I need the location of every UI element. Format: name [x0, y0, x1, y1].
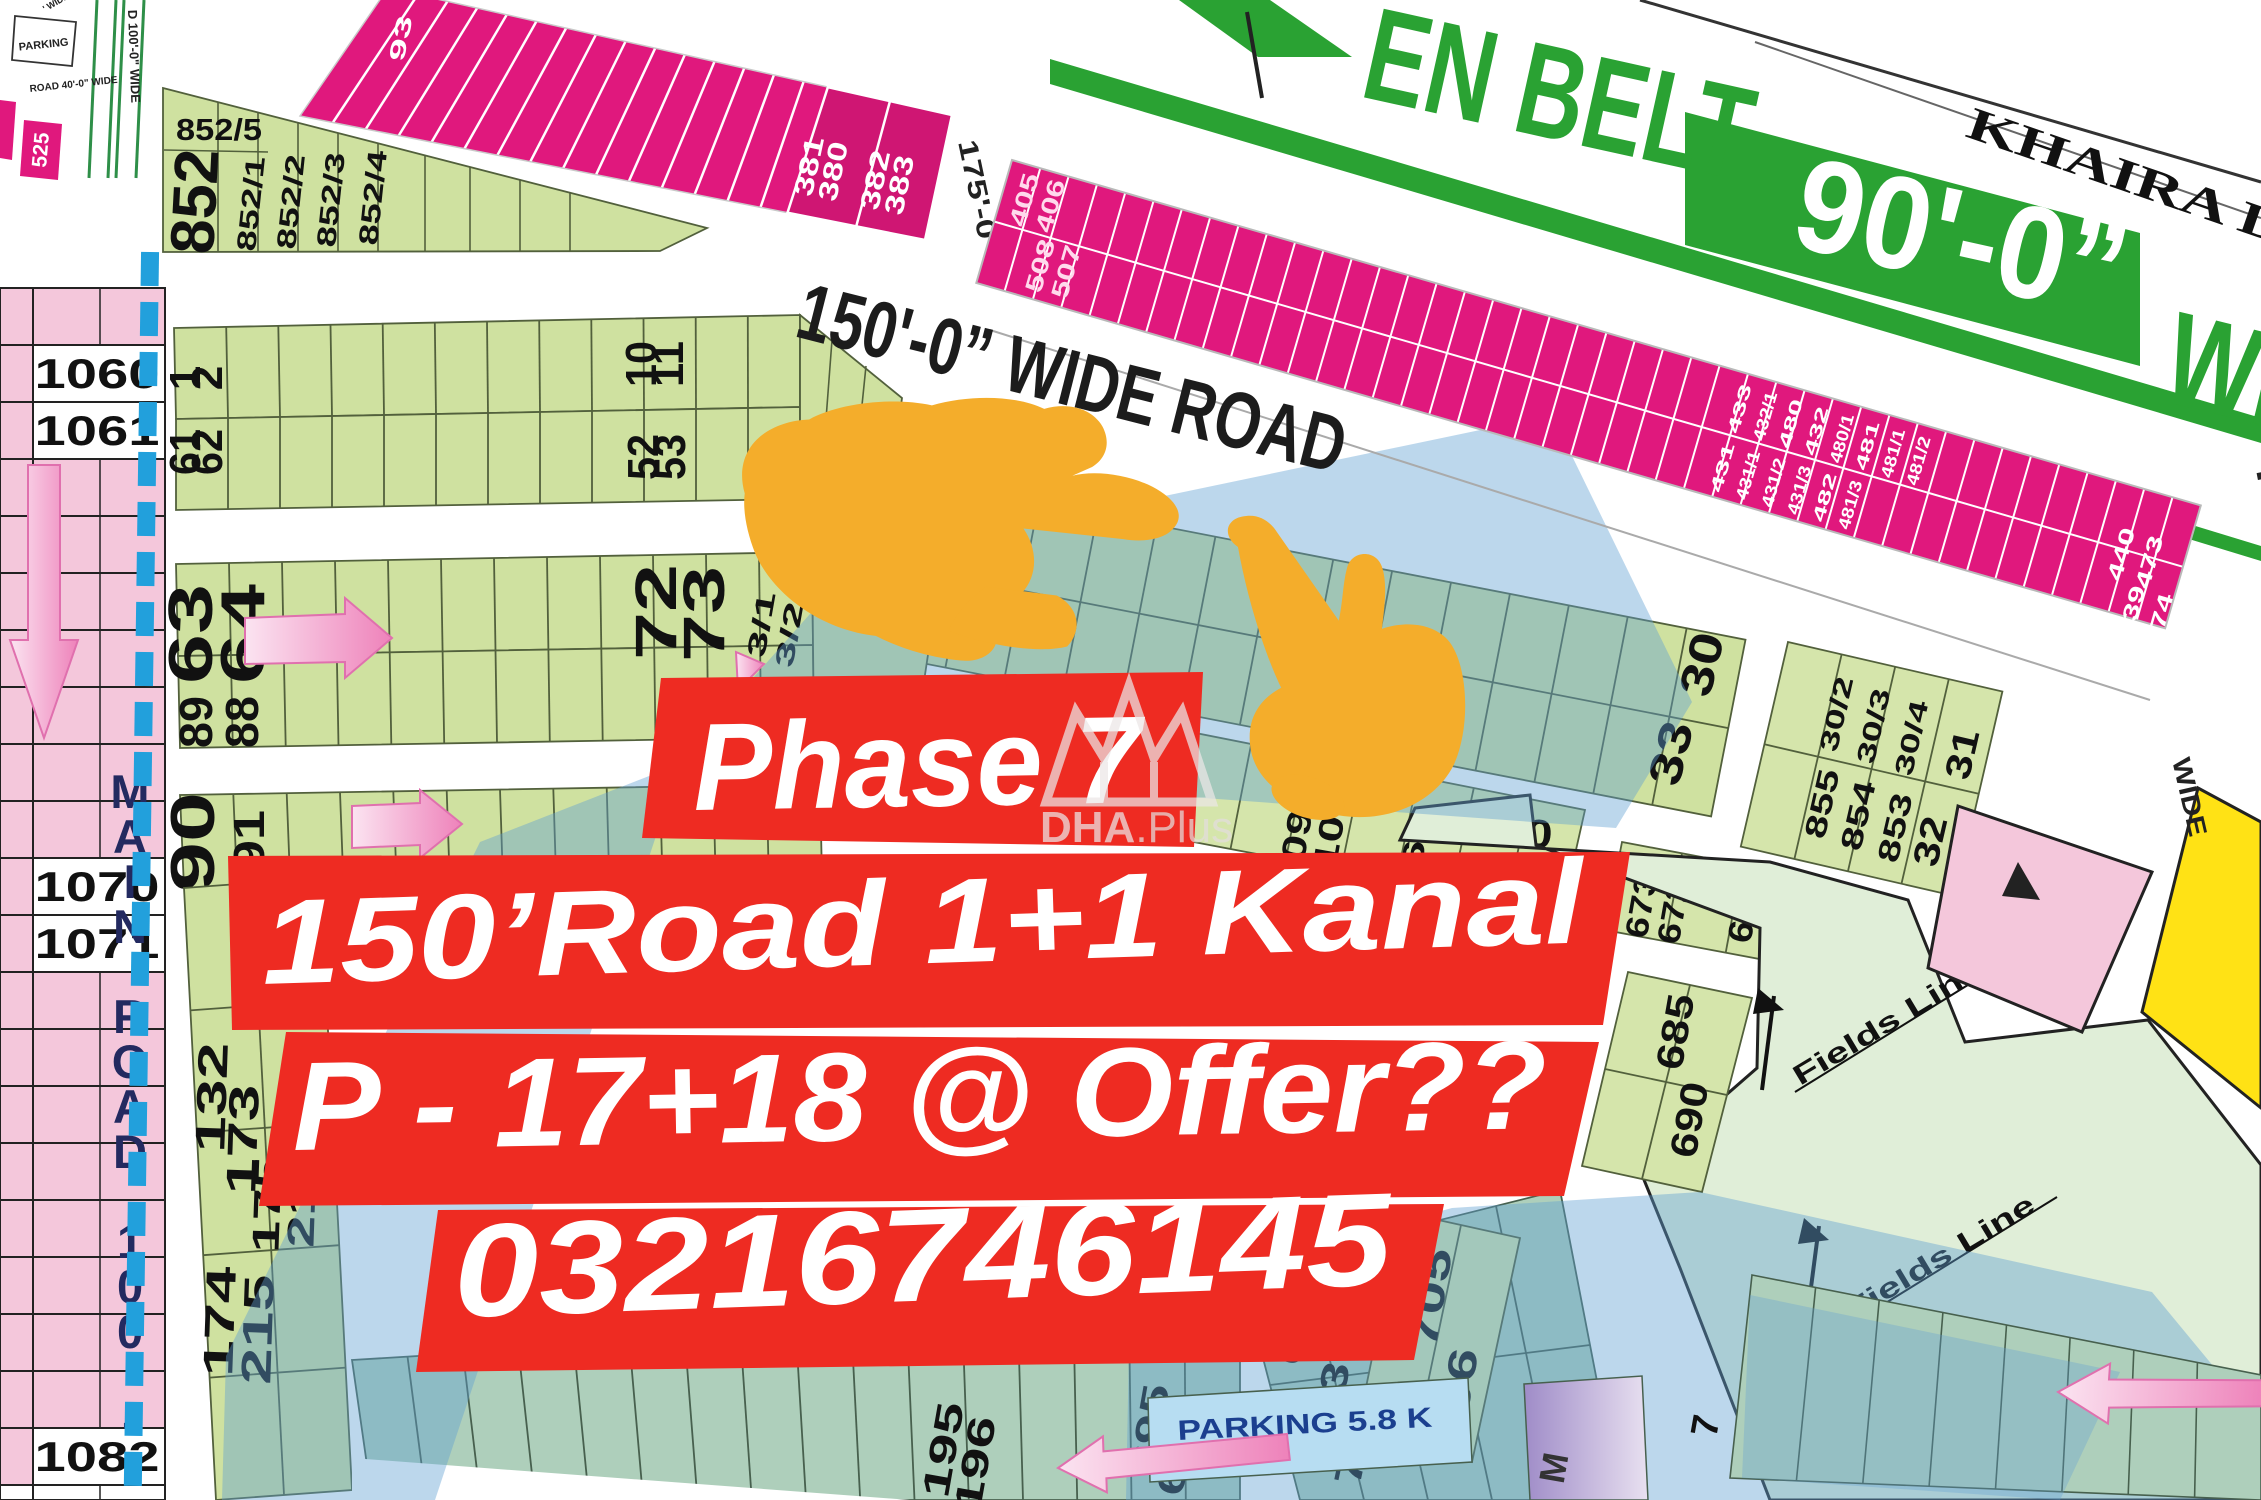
- svg-text:525: 525: [28, 131, 54, 168]
- svg-text:852/5: 852/5: [176, 112, 262, 147]
- svg-text:73: 73: [672, 566, 737, 662]
- svg-text:90: 90: [159, 792, 228, 892]
- svg-text:53: 53: [646, 434, 695, 480]
- svg-text:2: 2: [183, 366, 232, 390]
- svg-text:DHA.Plus: DHA.Plus: [1040, 803, 1233, 852]
- svg-text:P - 17+18 @ Offer??: P - 17+18 @ Offer??: [291, 1014, 1548, 1177]
- svg-text:852: 852: [158, 147, 232, 255]
- svg-text:88: 88: [216, 696, 268, 748]
- svg-text:62: 62: [183, 429, 232, 475]
- svg-text:11: 11: [644, 341, 693, 387]
- svg-text:89: 89: [170, 696, 222, 748]
